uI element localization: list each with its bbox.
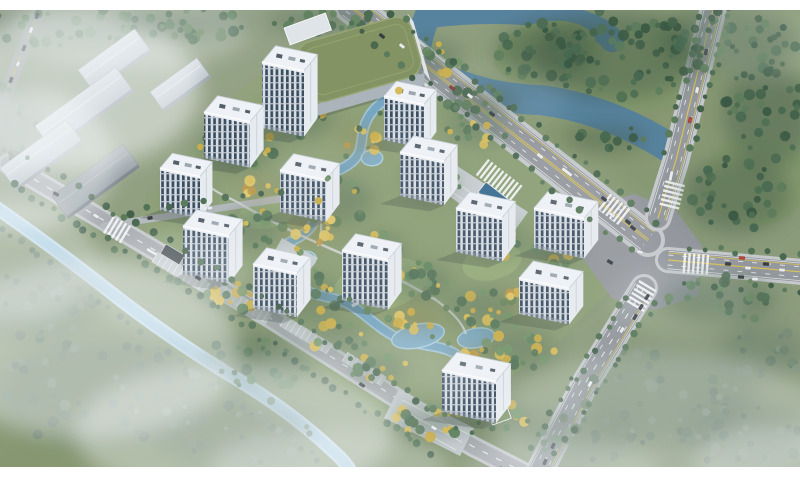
haze-layer bbox=[0, 0, 800, 485]
aerial-rendering-stage bbox=[0, 0, 800, 485]
aerial-site-rendering bbox=[0, 0, 800, 485]
